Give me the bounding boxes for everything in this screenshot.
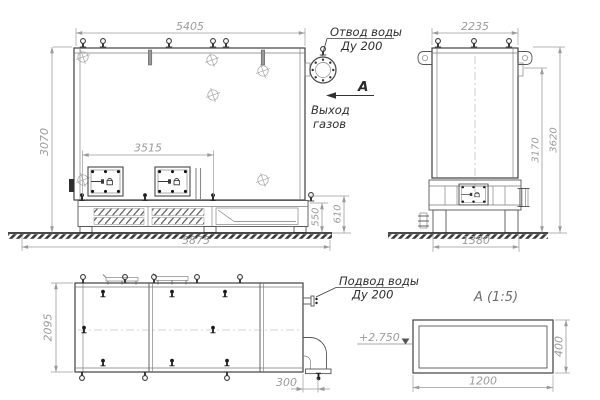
eyebolt-icon — [506, 39, 512, 47]
dim-arrowhead-icon — [318, 387, 325, 391]
lifting-lug — [518, 52, 532, 65]
dim-front-height: 3070 — [38, 128, 51, 156]
lifting-lug — [418, 52, 432, 65]
anchor-bolt-icon — [169, 359, 174, 366]
front-roof-eyebolts — [80, 39, 229, 47]
anchor-bolt-icon — [100, 359, 105, 366]
eyebolt-icon — [80, 275, 86, 283]
eyebolt-icon — [224, 372, 230, 380]
front-view: Отвод воды Ду 200 А Выход газов 5405 307… — [8, 20, 402, 251]
drawing-canvas: Отвод воды Ду 200 А Выход газов 5405 307… — [0, 0, 600, 400]
anchor-bolt-icon — [100, 290, 105, 297]
dim-front-width-top: 5405 — [176, 20, 204, 33]
anchor-bolt-icon — [316, 373, 321, 380]
water-inlet-label-line2: Ду 200 — [351, 288, 393, 302]
gas-duct-inner — [419, 326, 547, 368]
section-arrow-a: А — [326, 79, 374, 99]
boiler-body-plan — [75, 283, 303, 372]
support-foot — [294, 227, 306, 233]
eyebolt-icon — [237, 275, 243, 283]
datum-crosshair-icon — [256, 64, 270, 78]
ash-drawer — [216, 208, 298, 225]
eyebolt-icon — [223, 39, 229, 47]
water-outlet-flange — [305, 47, 336, 83]
datum-crosshair-icon — [205, 53, 219, 67]
elevation-value: +2.750 — [359, 331, 400, 344]
furnace-door-right — [155, 167, 190, 196]
anchor-bolt-icon — [210, 326, 215, 333]
grate-icon — [152, 209, 204, 216]
dim-side-height-overall: 3620 — [549, 127, 560, 152]
detail-dimensions: 1200 400 — [413, 320, 570, 392]
elevation-mark: +2.750 — [357, 331, 413, 345]
eyebolt-icon — [210, 39, 216, 47]
roof-bracket-icon — [261, 50, 265, 65]
support-leg — [433, 210, 446, 233]
dim-side-width-top: 2235 — [461, 20, 489, 33]
gas-outlet-label-line1: Выход — [311, 103, 350, 117]
gas-outlet-label-line2: газов — [313, 117, 346, 131]
eyebolt-icon — [122, 275, 128, 283]
detail-title: А (1:5) — [473, 290, 518, 305]
eyebolt-icon — [151, 275, 157, 283]
side-pipes — [518, 188, 530, 207]
support-foot — [204, 227, 216, 233]
dim-detail-height: 400 — [553, 336, 566, 357]
dim-outlet-offset: 300 — [276, 376, 297, 389]
gas-duct-outer — [413, 320, 553, 373]
support-leg — [505, 210, 518, 233]
datum-crosshair-icon — [76, 50, 90, 64]
flange-icon — [311, 296, 314, 306]
front-dimensions: 5405 3070 3515 5875 550 610 — [22, 20, 351, 251]
section-letter: А — [357, 79, 368, 95]
anchor-bolt-icon — [222, 290, 227, 297]
gas-outlet-elbow — [303, 338, 331, 381]
water-inlet-stub — [303, 296, 318, 306]
water-outlet-label-line1: Отвод воды — [330, 25, 402, 39]
gas-outlet-label: Выход газов — [311, 103, 350, 131]
anchor-bolt-icon — [142, 193, 147, 200]
eyebolt-icon — [166, 39, 172, 47]
dim-arrowhead-icon — [297, 387, 304, 391]
boiler-assembly-drawing: Отвод воды Ду 200 А Выход газов 5405 307… — [0, 0, 600, 400]
detail-view-a: А (1:5) +2.750 1200 400 — [357, 290, 570, 392]
side-view: 2235 3170 3620 1380 — [388, 20, 567, 252]
dim-plan-depth: 2095 — [42, 314, 55, 342]
eyebolt-icon — [80, 39, 86, 47]
side-dimensions: 2235 3170 3620 1380 — [432, 20, 565, 252]
drain-valve — [418, 213, 429, 228]
plan-anchor-bolts — [81, 290, 229, 366]
water-inlet-callout: Подвод воды Ду 200 — [316, 274, 419, 302]
eyebolt-icon — [435, 39, 441, 47]
water-outlet-callout: Отвод воды Ду 200 — [322, 25, 402, 56]
datum-crosshair-icon — [206, 88, 220, 102]
side-base-frame — [418, 180, 530, 233]
datum-crosshair-icon — [256, 173, 270, 187]
boiler-body-side — [418, 39, 532, 200]
eyebolt-icon — [194, 275, 200, 283]
eyebolt-icon — [471, 39, 477, 47]
eyebolt-icon — [100, 39, 106, 47]
anchor-bolt-icon — [224, 359, 229, 366]
ground-front — [8, 233, 332, 239]
water-inlet-label-line1: Подвод воды — [339, 274, 419, 288]
dim-side-height-inner: 3170 — [531, 137, 542, 162]
water-outlet-label-line2: Ду 200 — [340, 39, 382, 53]
dim-detail-width: 1200 — [469, 375, 497, 388]
dim-front-width-overall: 5875 — [182, 234, 210, 247]
grate-icon — [94, 218, 144, 225]
dim-doors-span: 3515 — [134, 142, 162, 155]
anchor-bolt-icon — [210, 193, 215, 200]
anchor-bolt-icon — [81, 326, 86, 333]
anchor-bolt-icon — [169, 290, 174, 297]
eyebolt-icon — [142, 372, 148, 380]
dim-base-height-inner: 550 — [311, 207, 322, 226]
grate-icon — [94, 209, 144, 216]
eyebolt-icon — [79, 372, 85, 380]
left-wall-bracket — [69, 179, 74, 192]
front-datum-marks — [76, 50, 270, 187]
support-foot — [80, 227, 92, 233]
dim-legs-span: 1380 — [462, 234, 490, 247]
grate-icon — [152, 218, 204, 225]
eyebolt-icon — [308, 193, 314, 201]
plan-dimensions: 2095 300 — [42, 283, 331, 393]
roof-bracket-icon — [148, 50, 152, 65]
section-arrowhead-icon — [326, 92, 336, 98]
ash-door — [459, 184, 488, 205]
furnace-door-left — [88, 167, 123, 196]
dim-base-height-outer: 610 — [333, 204, 344, 223]
